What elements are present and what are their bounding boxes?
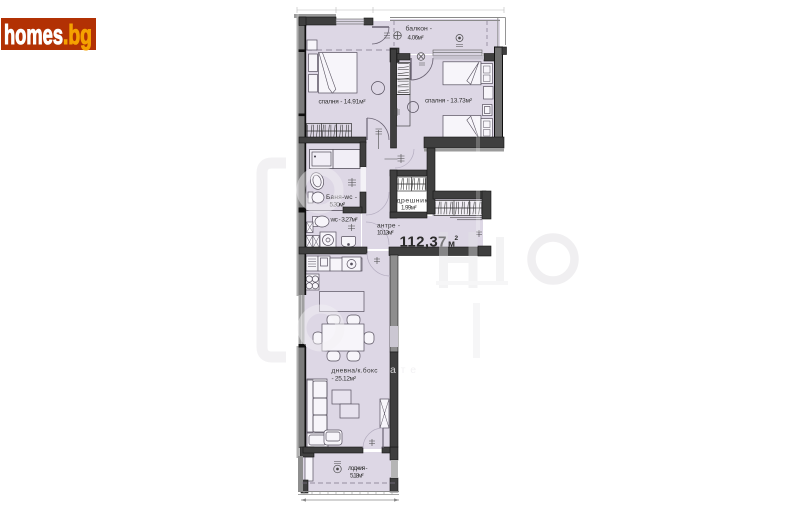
- svg-text:homes: homes: [4, 19, 63, 50]
- svg-text:дневна/к.бокс: дневна/к.бокс: [332, 367, 379, 375]
- svg-text:10.13м²: 10.13м²: [377, 230, 394, 237]
- svg-text:лоджия -: лоджия -: [348, 465, 368, 472]
- svg-text:2: 2: [455, 235, 459, 242]
- svg-text:спалня - 14.91м²: спалня - 14.91м²: [319, 99, 367, 106]
- svg-text:ате: ате: [390, 364, 421, 376]
- svg-text:wc - 3.27м²: wc - 3.27м²: [330, 217, 359, 224]
- svg-text:балкон -: балкон -: [406, 25, 433, 33]
- svg-text:1.99м²: 1.99м²: [401, 205, 417, 212]
- svg-text:- 25.12м²: - 25.12м²: [332, 376, 357, 383]
- svg-text:антре -: антре -: [377, 223, 400, 230]
- svg-text:.bg: .bg: [63, 19, 92, 50]
- svg-text:дрешник: дрешник: [397, 198, 428, 205]
- svg-text:спалня - 13.73м²: спалня - 13.73м²: [425, 98, 473, 105]
- svg-text:4.06м²: 4.06м²: [408, 35, 424, 42]
- svg-text:5.18м²: 5.18м²: [350, 473, 364, 480]
